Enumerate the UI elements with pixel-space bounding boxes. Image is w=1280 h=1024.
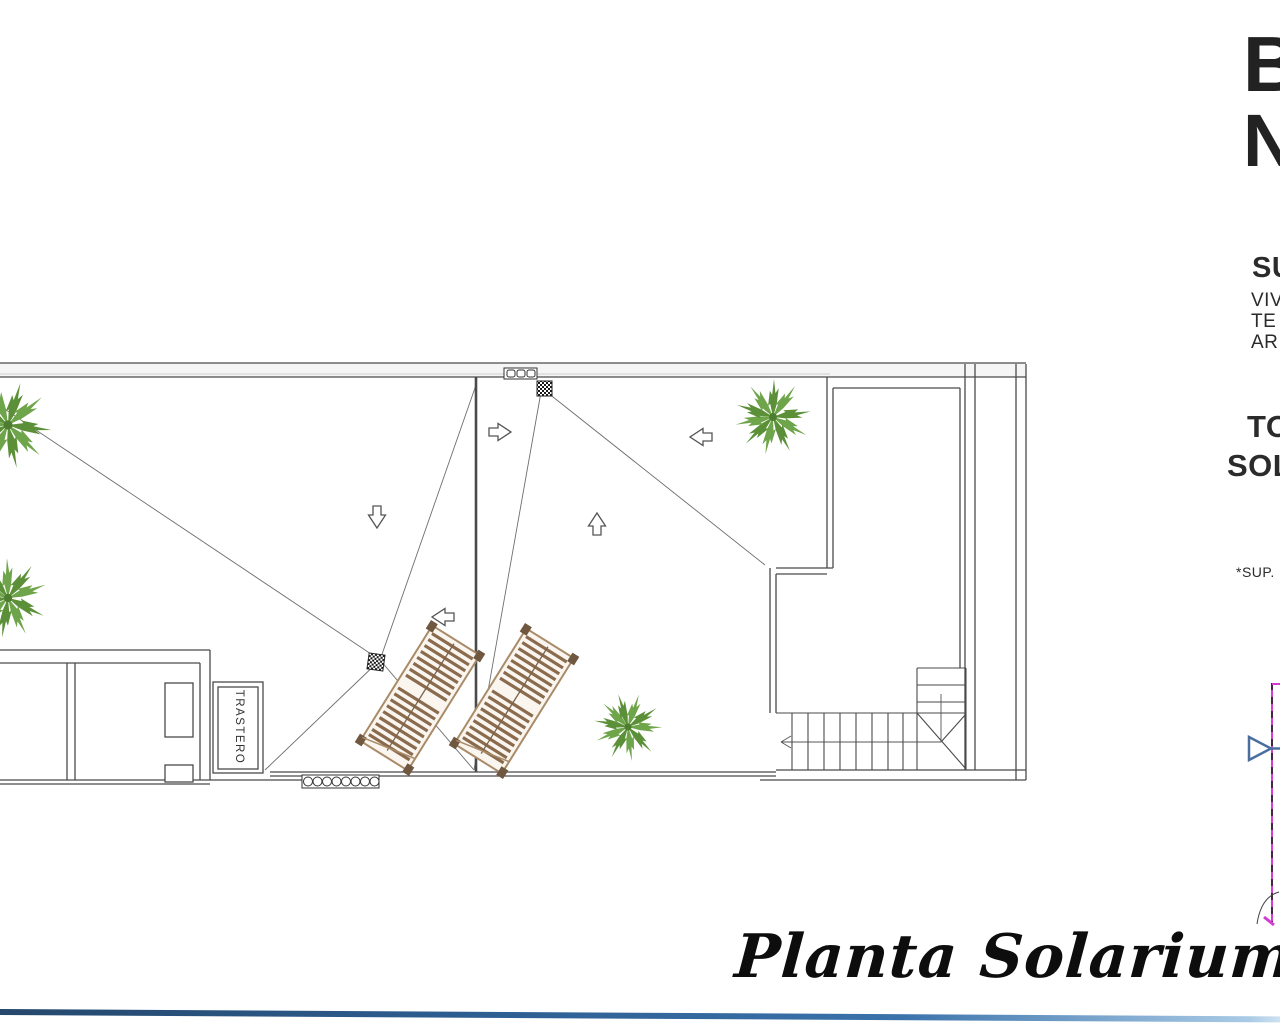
margin-text-line: VIV [1251, 291, 1280, 310]
margin-text-line: SOL [1227, 450, 1280, 481]
margin-text-line: TE [1251, 312, 1276, 331]
palm-tree-icon [726, 371, 820, 464]
margin-text-line: AR [1251, 333, 1278, 352]
margin-text-line: SU [1252, 254, 1280, 283]
roof-drain-icon [537, 381, 552, 396]
slope-arrow-icon [690, 429, 712, 446]
slope-arrow-icon [589, 513, 606, 535]
slope-arrow-icon [369, 506, 386, 528]
vent-strip-icon [504, 368, 537, 379]
section-marker-icon [1249, 737, 1280, 760]
staircase [776, 668, 966, 770]
margin-text-line: TO [1247, 411, 1280, 442]
roof-drain-icon [367, 653, 385, 671]
sun-lounger-icon [355, 620, 486, 776]
slope-arrows [369, 424, 713, 626]
palm-tree-icon [0, 381, 52, 468]
palm-tree-icon [0, 547, 59, 650]
slope-arrow-icon [489, 424, 511, 441]
margin-big-letter: N [1243, 104, 1280, 178]
storage-room-label: TRASTERO [233, 690, 245, 765]
floor-plan: TRASTERO [0, 0, 1280, 1024]
palm-tree-icon [579, 679, 676, 776]
adjacent-plan-fragment [1249, 683, 1280, 925]
plan-title: Planta Solarium [733, 922, 1280, 992]
margin-big-letter: B [1243, 25, 1280, 103]
sun-lounger-icon [449, 623, 580, 779]
storage-room: TRASTERO [213, 682, 263, 773]
margin-text-line: *SUP. [1236, 565, 1275, 579]
vent-strip-icon [302, 775, 379, 788]
